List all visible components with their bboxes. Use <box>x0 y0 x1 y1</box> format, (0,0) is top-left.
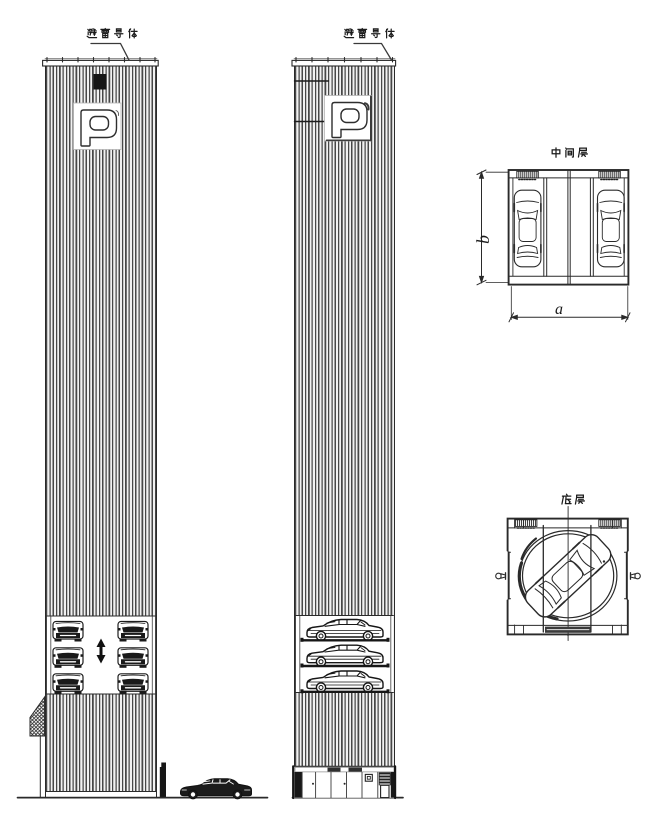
svg-text:b: b <box>473 235 493 244</box>
svg-text:a: a <box>555 301 563 318</box>
